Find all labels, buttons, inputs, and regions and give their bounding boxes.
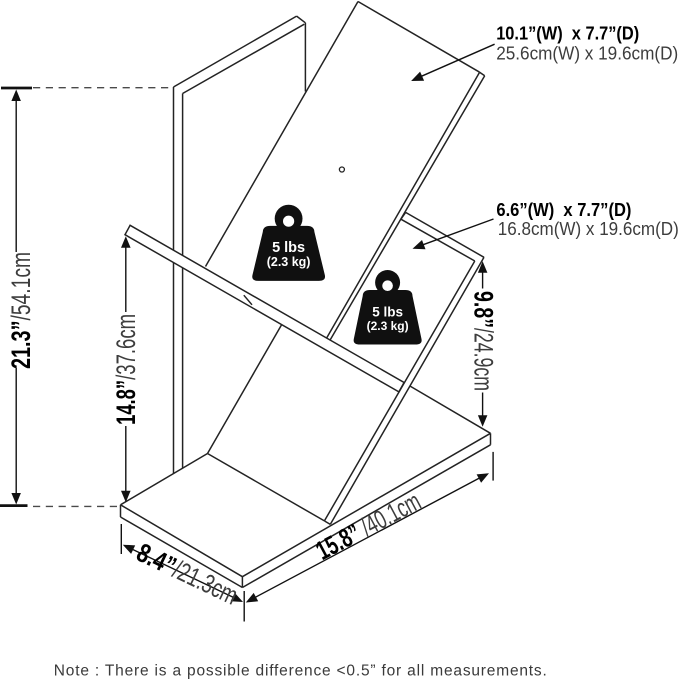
svg-text:14.8”/37.6cm: 14.8”/37.6cm [111, 314, 141, 425]
svg-text:21.3”/54.1cm: 21.3”/54.1cm [6, 252, 36, 369]
svg-text:5 lbs: 5 lbs [272, 240, 305, 256]
svg-text:10.1”(W) x 7.7”(D): 10.1”(W) x 7.7”(D) [496, 23, 639, 44]
svg-text:16.8cm(W) x 19.6cm(D): 16.8cm(W) x 19.6cm(D) [498, 218, 679, 239]
svg-text:6.6”(W) x 7.7”(D): 6.6”(W) x 7.7”(D) [496, 199, 631, 220]
svg-text:(2.3 kg): (2.3 kg) [267, 255, 311, 269]
svg-text:5 lbs: 5 lbs [372, 305, 403, 320]
svg-text:9.8”/24.9cm: 9.8”/24.9cm [469, 291, 499, 391]
svg-text:(2.3 kg): (2.3 kg) [367, 319, 409, 333]
svg-text:Note : There is a possible dif: Note : There is a possible difference <0… [54, 663, 547, 680]
svg-text:25.6cm(W) x 19.6cm(D): 25.6cm(W) x 19.6cm(D) [496, 42, 678, 63]
